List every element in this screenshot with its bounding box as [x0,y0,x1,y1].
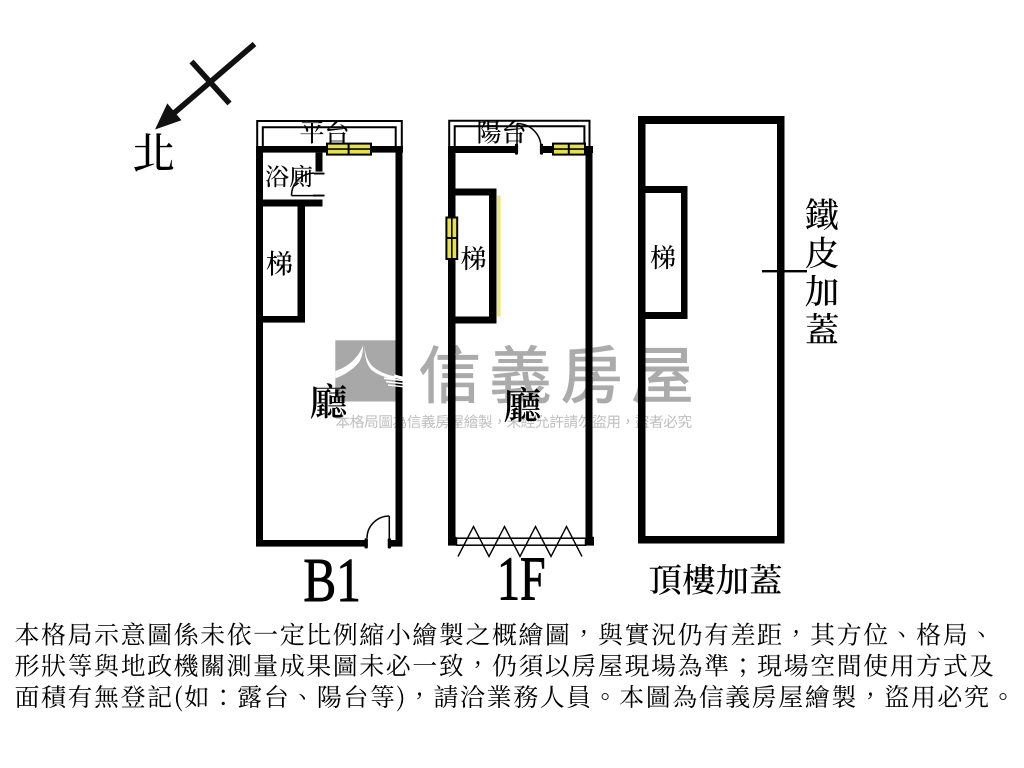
svg-text:B1: B1 [303,547,361,615]
svg-text:1F: 1F [497,546,546,614]
